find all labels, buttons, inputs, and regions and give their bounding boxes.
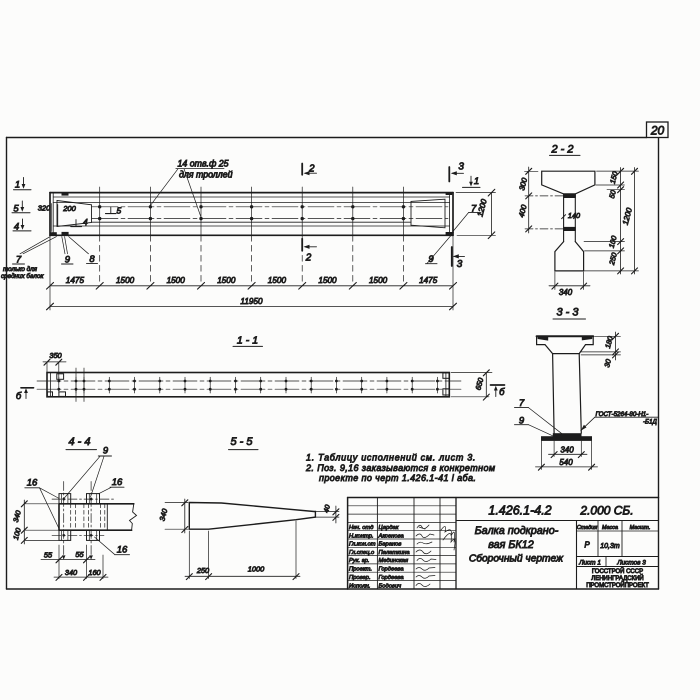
svg-text:Стадия: Стадия [577,525,597,531]
svg-text:16: 16 [27,478,38,489]
svg-text:3: 3 [458,162,464,173]
svg-text:1: 1 [474,176,479,187]
svg-text:540: 540 [559,458,573,467]
svg-text:2: 2 [305,252,312,263]
svg-text:Аксенова: Аксенова [378,533,405,539]
svg-text:11950: 11950 [240,297,263,306]
svg-text:16: 16 [112,477,123,488]
svg-text:55: 55 [75,550,84,559]
svg-text:2: 2 [308,164,315,175]
svg-text:340: 340 [560,445,574,454]
svg-text:Листов 3: Листов 3 [616,560,646,567]
svg-text:340: 340 [65,568,78,577]
svg-text:Рук. гр.: Рук. гр. [349,558,369,564]
svg-text:340: 340 [559,288,573,297]
svg-text:1500: 1500 [268,276,287,285]
svg-text:3-3: 3-3 [557,307,582,319]
svg-text:Гордеева: Гордеева [379,575,405,581]
svg-text:ГОССТРОЙ СССР: ГОССТРОЙ СССР [592,567,643,575]
svg-text:200: 200 [62,204,76,213]
svg-text:Гордеева: Гордеева [379,567,405,573]
svg-text:14 отв.ф 25: 14 отв.ф 25 [178,158,229,168]
svg-text:1500: 1500 [217,276,236,285]
svg-text:Гл.спец.о: Гл.спец.о [349,550,375,556]
svg-text:только для: только для [3,265,38,273]
svg-text:10,3т: 10,3т [600,543,620,550]
svg-text:Проект.: Проект. [349,567,372,573]
svg-text:320: 320 [38,203,51,212]
svg-text:4: 4 [83,217,88,227]
svg-text:Нач. отд: Нач. отд [349,525,374,531]
svg-text:4-4: 4-4 [69,436,94,448]
svg-text:Балка подкрано-: Балка подкрано- [475,525,559,537]
svg-text:1500: 1500 [318,276,337,285]
svg-text:2-2: 2-2 [551,144,577,156]
svg-text:9: 9 [103,446,109,457]
svg-text:160: 160 [88,568,101,577]
svg-text:Масса: Масса [602,525,618,531]
svg-text:55: 55 [44,551,53,560]
svg-text:Провер.: Провер. [349,575,371,581]
svg-text:ПРОМСТРОЙПРОЕКТ: ПРОМСТРОЙПРОЕКТ [586,581,649,589]
svg-text:1475: 1475 [419,276,438,285]
svg-text:5-5: 5-5 [231,436,256,448]
svg-text:Палаткина: Палаткина [379,550,411,556]
svg-text:5: 5 [117,205,122,215]
svg-text:1500: 1500 [116,276,135,285]
svg-text:20: 20 [650,124,665,138]
svg-text:б: б [16,391,22,402]
svg-text:средних балок: средних балок [1,272,44,280]
svg-text:1-1: 1-1 [237,334,261,346]
svg-text:350: 350 [49,351,62,360]
svg-text:Баранов: Баранов [379,542,402,548]
svg-text:Исполн.: Исполн. [349,583,370,589]
svg-text:1475: 1475 [66,276,85,285]
svg-text:ГОСТ-5264-80-Н1-: ГОСТ-5264-80-Н1- [596,411,649,418]
svg-text:2.000 СБ.: 2.000 СБ. [579,503,633,517]
svg-text:ЛЕНИНГРАДСКИЙ: ЛЕНИНГРАДСКИЙ [591,574,644,582]
svg-text:проекте по черт 1.426.1-41: проекте по черт 1.426.1-41 і аба. [319,473,476,483]
svg-text:вая БК12: вая БК12 [488,539,534,551]
svg-text:2. Поз. 9,16 заказываются в ко: 2. Поз. 9,16 заказываются в конкретном [305,463,495,473]
svg-text:Бодович: Бодович [379,583,402,589]
svg-text:б: б [499,387,505,398]
svg-text:Р: Р [584,541,590,550]
svg-text:3: 3 [457,259,463,270]
svg-text:Сборочный чертеж: Сборочный чертеж [469,553,564,565]
svg-text:Гл.кон.от: Гл.кон.от [349,542,376,548]
svg-text:140: 140 [568,211,580,220]
svg-text:1500: 1500 [369,276,388,285]
svg-text:16: 16 [117,545,128,556]
svg-text:1: 1 [15,180,20,191]
svg-text:-Б1Д: -Б1Д [643,418,658,425]
svg-text:Цардак: Цардак [379,525,399,531]
svg-text:1.426.1-4.2: 1.426.1-4.2 [488,503,551,517]
svg-text:1500: 1500 [167,276,186,285]
svg-text:Лист 1: Лист 1 [578,560,601,567]
svg-text:250: 250 [196,566,210,575]
svg-text:1000: 1000 [248,564,265,573]
svg-text:1. Таблицу исполнений см. лис: 1. Таблицу исполнений см. лист 3. [306,452,476,462]
svg-text:Н.контр.: Н.контр. [349,533,374,539]
svg-text:Мединская: Мединская [379,558,409,564]
svg-text:Масшт.: Масшт. [630,525,651,531]
